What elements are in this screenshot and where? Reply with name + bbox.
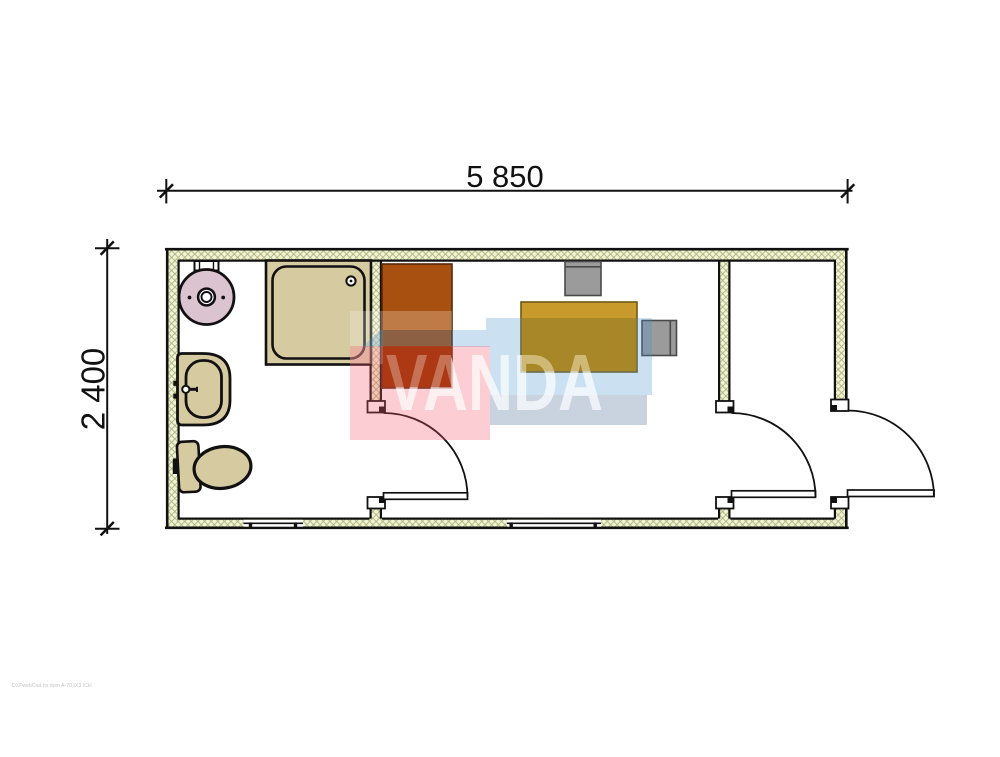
svg-text:2 400: 2 400: [75, 348, 112, 431]
svg-text:DXFwebCad hs dum A-70 IX3 ICH: DXFwebCad hs dum A-70 IX3 ICH: [12, 683, 92, 689]
svg-text:5 850: 5 850: [466, 159, 544, 194]
